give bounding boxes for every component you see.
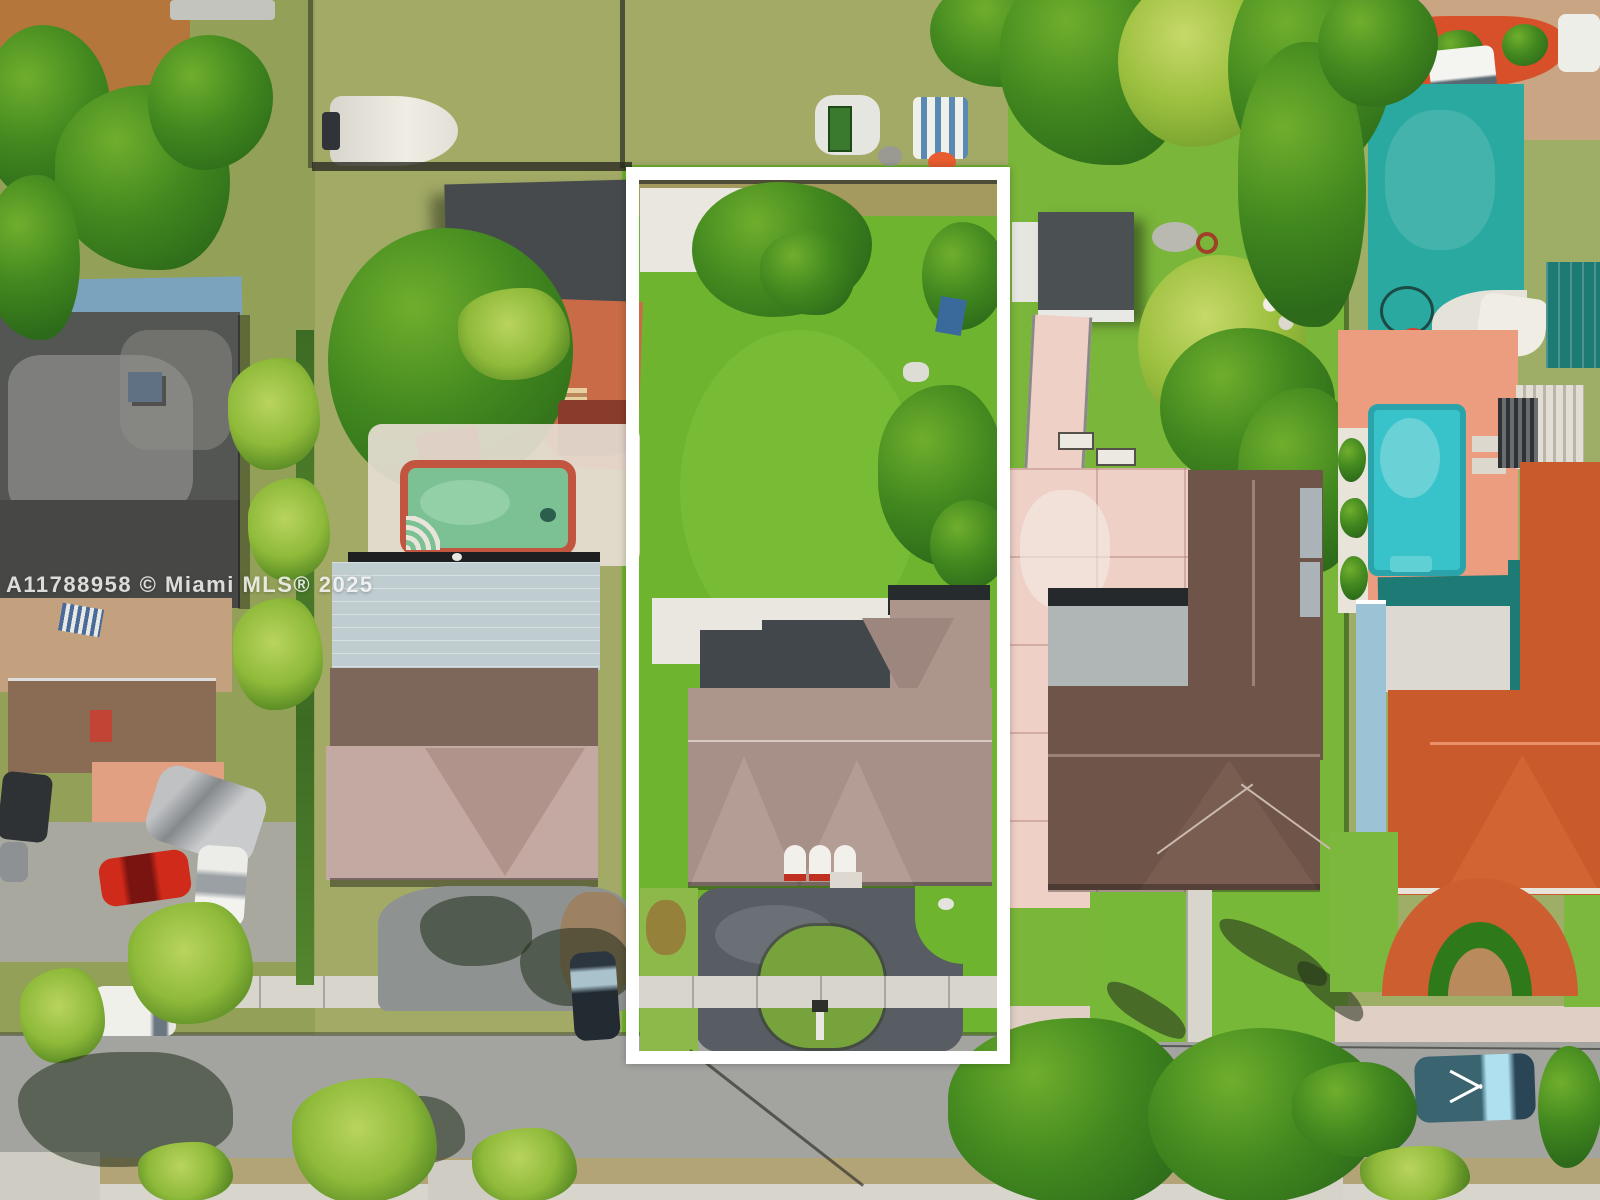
street-palm: [472, 1128, 577, 1200]
street-palm: [138, 1142, 233, 1200]
corner-tree: [1538, 1046, 1600, 1168]
tree: [0, 175, 80, 340]
green-pond: [828, 106, 852, 152]
boat-outboard-motor: [322, 112, 340, 150]
red-planter: [90, 710, 112, 742]
palm-tree: [228, 358, 320, 470]
vehicle-white-edge: [1558, 14, 1600, 72]
street-palm: [292, 1078, 437, 1200]
roof-ridge-line: [1430, 742, 1600, 745]
shed-camper-white: [1012, 222, 1040, 302]
aerial-photo-scene: A11788958 © Miami MLS® 2025: [0, 0, 1600, 1200]
roof-ridge-line: [1048, 754, 1320, 757]
palm-canopy: [128, 902, 253, 1024]
palm-shadow: [420, 896, 532, 966]
slate-patch: [1300, 488, 1322, 558]
pool-step: [1390, 556, 1432, 572]
parked-suv-dark: [0, 771, 53, 844]
flat-roof-gray: [1048, 606, 1188, 688]
street-palm: [1360, 1146, 1470, 1200]
teal-awning-right: [1546, 262, 1600, 368]
garden-bench: [1058, 432, 1094, 450]
parked-car-gray: [0, 842, 28, 882]
red-tile-roof-upper: [1520, 462, 1600, 694]
pool-cleaner: [540, 508, 556, 522]
boat-on-trailer: [330, 96, 458, 166]
property-outline-rectangle: [626, 167, 1010, 1064]
dark-slat-structure: [1498, 398, 1538, 468]
fence-line: [620, 0, 625, 168]
shingle-band-brown: [330, 668, 598, 748]
stone-circle: [1152, 222, 1198, 252]
gray-disc: [878, 146, 902, 166]
bottom-sidewalk: [0, 1184, 1600, 1200]
house-eave-line: [348, 552, 600, 562]
pool-sparkle: [1380, 418, 1440, 498]
pink-paver-path: [1024, 315, 1093, 483]
front-walkway: [1186, 890, 1212, 1042]
fence-line: [308, 0, 313, 168]
palm-canopy: [20, 968, 105, 1063]
gray-tarp: [170, 0, 275, 20]
pool-water-mottle: [420, 480, 510, 525]
back-fence: [312, 162, 632, 171]
eave-vent: [452, 553, 462, 561]
dark-eave-band: [1048, 588, 1188, 608]
wall-light-blue: [1356, 600, 1386, 836]
eave-shadow: [1048, 884, 1320, 892]
brown-roof-wing: [8, 678, 216, 773]
parked-car-dark: [569, 951, 621, 1042]
flat-roof-white: [1384, 606, 1510, 692]
palm-tree: [233, 598, 323, 710]
court-wear-streak: [1385, 110, 1495, 250]
slate-patch: [1300, 562, 1320, 617]
planter-shrub: [1340, 498, 1368, 538]
palm-tree: [248, 478, 330, 580]
shed-roof: [1038, 212, 1134, 316]
stone-ring-red: [1196, 232, 1218, 254]
street-tree: [1292, 1062, 1417, 1157]
garden-bench: [1096, 448, 1136, 466]
mls-watermark: A11788958 © Miami MLS® 2025: [6, 572, 374, 598]
lap-pool-frame: [913, 97, 968, 159]
palm-fronds: [458, 288, 570, 380]
rooftop-ac-unit: [128, 372, 162, 402]
